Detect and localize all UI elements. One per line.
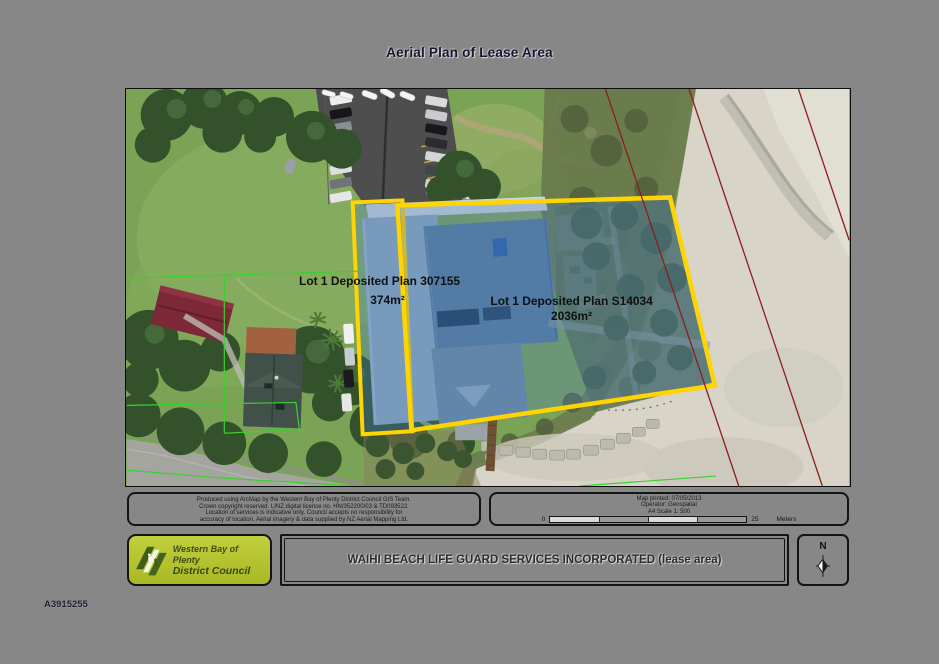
disclaimer-line: Produced using ArcMap by the Western Bay… [129, 497, 479, 504]
scale-ratio: A4 Scale 1: 500 [491, 509, 847, 515]
scale-max: 25 [751, 516, 758, 523]
council-logo: Western Bay of Plenty District Council [127, 534, 272, 586]
north-arrow-panel: N [797, 534, 849, 586]
scale-bar [549, 516, 747, 523]
council-logo-icon [135, 541, 168, 579]
disclaimer-panel: Produced using ArcMap by the Western Bay… [127, 492, 481, 526]
scale-bar-segment [550, 517, 599, 522]
disclaimer-line: accuracy of location. Aerial imagery & d… [129, 517, 479, 524]
scale-bar-segment [600, 517, 649, 522]
disclaimer-line: Crown copyright reserved. LINZ digital l… [129, 504, 479, 511]
scale-bar-segment [649, 517, 698, 522]
lot-small-name: Lot 1 Deposited Plan 307155 [299, 274, 460, 288]
scale-bar-segment [698, 517, 746, 522]
scale-units: Meters [776, 516, 796, 523]
aerial-map: Lot 1 Deposited Plan 307155 374m² Lot 1 … [125, 88, 851, 487]
scale-bar-row: 0 25 Meters [491, 516, 847, 523]
lot-large-area: 2036m² [551, 309, 592, 323]
lot-small-area: 374m² [370, 293, 404, 307]
aerial-photo: Lot 1 Deposited Plan 307155 374m² Lot 1 … [126, 89, 850, 486]
scale-zero: 0 [542, 516, 546, 523]
sheet-title: WAIHI BEACH LIFE GUARD SERVICES INCORPOR… [347, 554, 721, 566]
disclaimer-line: Location of services is indicative only.… [129, 510, 479, 517]
north-arrow-icon [812, 553, 834, 579]
council-name-line2: District Council [173, 566, 264, 577]
lot-large-name: Lot 1 Deposited Plan S14034 [490, 294, 653, 308]
north-label: N [819, 542, 826, 552]
scale-panel: Map printed: 07/05/2013 Operator: Geospa… [489, 492, 849, 526]
document-number: A3915255 [44, 599, 88, 610]
council-name-line1: Western Bay of Plenty [173, 544, 264, 566]
sheet-title-panel: WAIHI BEACH LIFE GUARD SERVICES INCORPOR… [280, 534, 789, 586]
page-title: Aerial Plan of Lease Area [0, 45, 939, 60]
